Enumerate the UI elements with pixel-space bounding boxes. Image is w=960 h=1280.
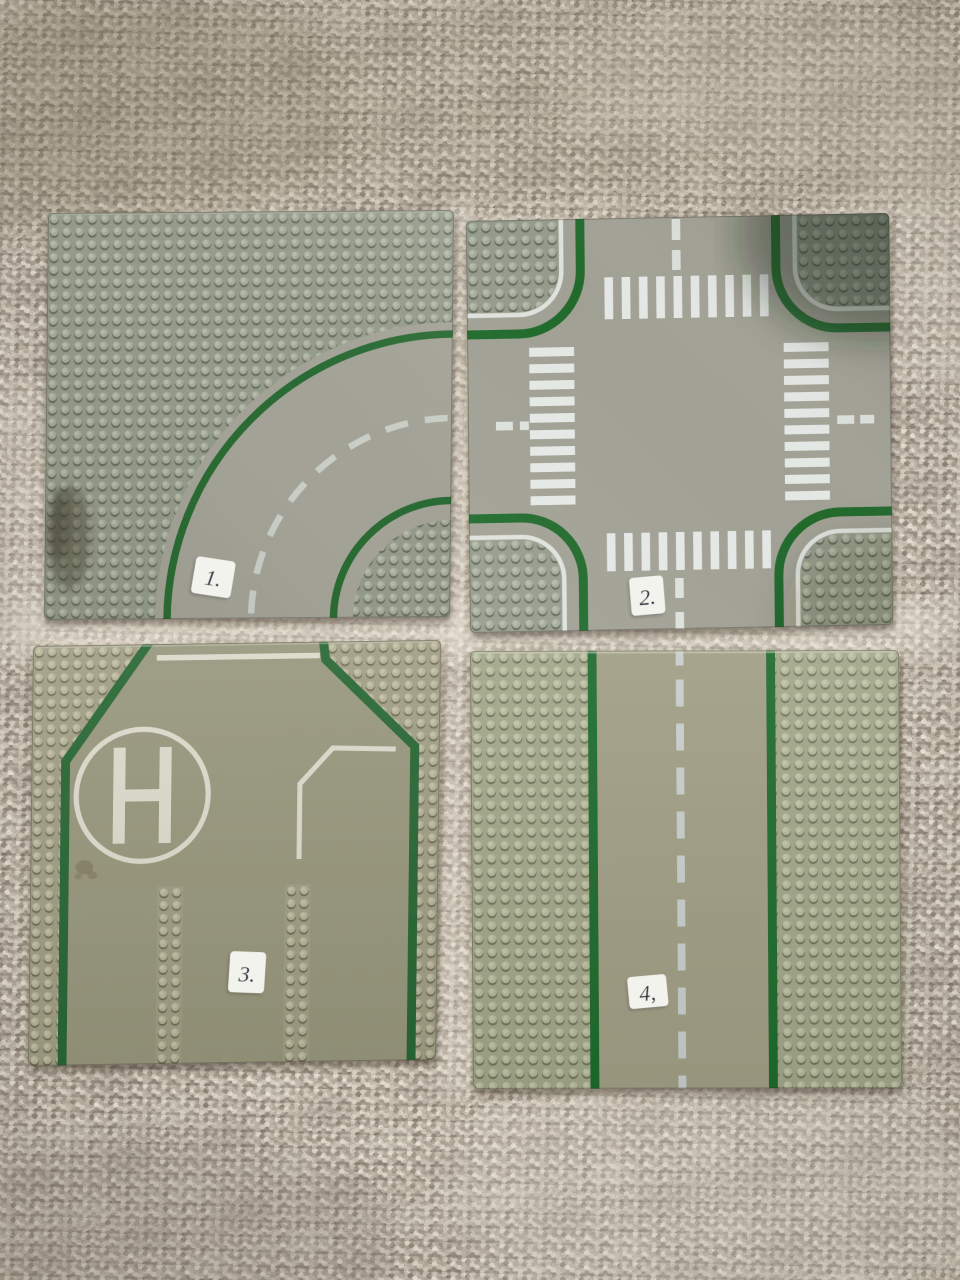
svg-text:4,: 4,: [638, 980, 657, 1006]
svg-text:2.: 2.: [638, 584, 656, 610]
svg-text:3.: 3.: [237, 961, 256, 987]
